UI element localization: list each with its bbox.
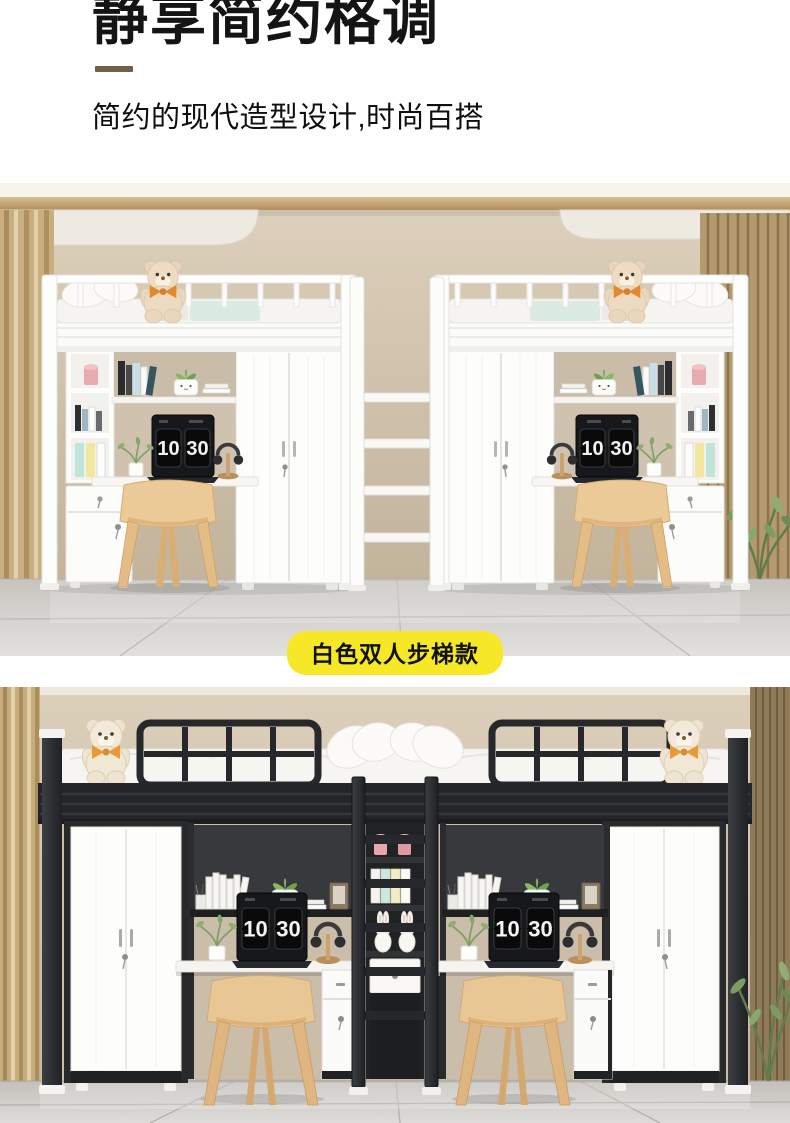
bed-post-right — [725, 729, 751, 1094]
curtain-left — [0, 687, 40, 1081]
svg-text:30: 30 — [528, 917, 552, 942]
bed-deck — [38, 783, 752, 824]
wardrobe-left — [64, 821, 188, 1091]
page-title: 静享简约格调 — [92, 0, 440, 48]
svg-text:10: 10 — [581, 438, 603, 460]
svg-text:30: 30 — [610, 438, 632, 460]
teddy-bear-left — [80, 720, 133, 786]
teddy-bear-right — [658, 720, 711, 786]
product-photo-white-model: 10 30 10 30 — [0, 183, 790, 656]
center-shelf-column — [366, 823, 424, 1079]
variant-badge: 白色双人步梯款 — [287, 631, 503, 675]
svg-text:30: 30 — [276, 917, 300, 942]
page-subtitle: 简约的现代造型设计,时尚百搭 — [92, 94, 484, 136]
bed-post-left — [39, 729, 65, 1094]
floor — [0, 1081, 790, 1123]
product-photo-black-model: 10 30 10 30 — [0, 687, 790, 1123]
wardrobe-right — [602, 821, 726, 1091]
svg-text:10: 10 — [157, 438, 179, 460]
svg-text:10: 10 — [495, 917, 519, 942]
variant-badge-label: 白色双人步梯款 — [311, 641, 479, 667]
svg-text:10: 10 — [243, 917, 267, 942]
product-detail-page: 静享简约格调 简约的现代造型设计,时尚百搭 — [0, 0, 790, 1123]
title-accent-dash — [95, 66, 133, 72]
svg-text:30: 30 — [186, 438, 208, 460]
